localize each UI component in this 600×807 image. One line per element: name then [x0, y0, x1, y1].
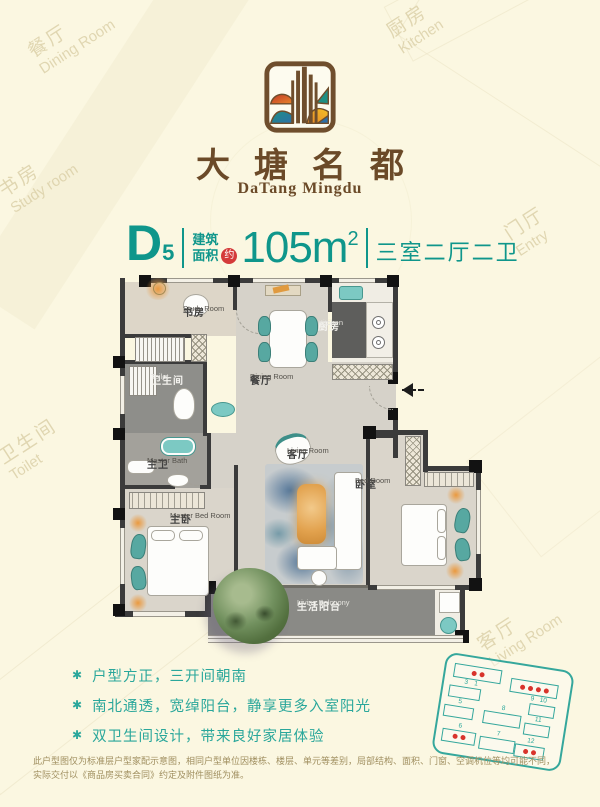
- window: [120, 528, 125, 584]
- master-wardrobe: [129, 492, 205, 509]
- siteplan-building-8: 8: [482, 710, 522, 729]
- toilet-fixture: [173, 388, 195, 420]
- dining-table: [269, 310, 307, 368]
- unit-location-dot: [543, 688, 549, 694]
- divider: [182, 228, 184, 268]
- dining-chair: [305, 316, 318, 336]
- siteplan-building-5: 5: [443, 704, 475, 721]
- window: [377, 585, 455, 590]
- coffee-table: [297, 484, 326, 544]
- bedroom-closet: [405, 436, 421, 486]
- unit-location-dot: [527, 685, 533, 691]
- unit-code: D5: [126, 218, 174, 278]
- lamp-glow: [129, 594, 147, 612]
- pillow: [151, 530, 175, 541]
- brand-logo: [261, 58, 339, 136]
- closet-cabinet: [191, 334, 207, 362]
- star-bullet-icon: ✱: [72, 698, 83, 712]
- window: [339, 278, 375, 283]
- balcony-tree: [213, 568, 289, 644]
- window: [133, 611, 185, 617]
- watermark-rect: [384, 0, 538, 62]
- flyer-page: 餐厅Dining Room 厨房Kitchen 书房Study room 门厅E…: [0, 0, 600, 807]
- unit-location-dot: [479, 671, 485, 677]
- wall-segment: [393, 278, 398, 384]
- window: [253, 278, 305, 283]
- pillow: [437, 536, 446, 560]
- siteplan-building-7: 7: [478, 736, 516, 754]
- corner-column: [387, 275, 399, 287]
- lamp-glow: [129, 514, 147, 532]
- sofa-chaise: [297, 546, 337, 570]
- star-bullet-icon: ✱: [72, 728, 83, 742]
- unit-location-dot: [535, 686, 541, 692]
- compass-rosette: [153, 282, 166, 295]
- siteplan-building-6: 6: [441, 728, 477, 746]
- unit-location-dot: [460, 735, 466, 741]
- wall-segment: [120, 485, 175, 489]
- bath-toilet: [167, 474, 189, 487]
- feature-item: ✱南北通透，宽绰阳台，静享更多入室阳光: [72, 690, 371, 720]
- bedroom-wardrobe: [424, 472, 474, 487]
- laundry-cabinet: [135, 337, 185, 362]
- kitchen-counter-strip: [366, 302, 393, 358]
- laundry-sink: [440, 617, 457, 634]
- floor-plan: 书房Study Room 餐厅Dining Room 厨房Kitchen 卫生间…: [115, 278, 503, 666]
- window: [476, 490, 481, 554]
- disclaimer-text: 此户型图仅为标准层户型家配示意图，相同户型单位因楼栋、楼层、单元等差别，局部结构…: [33, 754, 568, 783]
- window: [167, 278, 213, 283]
- kitchen-cabinets: [332, 364, 393, 380]
- corner-column: [113, 508, 125, 520]
- corner-column: [363, 426, 376, 439]
- unit-location-dot: [471, 670, 477, 676]
- layout-text: 三室二厅二卫: [376, 229, 520, 267]
- area-value: 105m2: [241, 223, 357, 273]
- siteplan-building-9: 9: [509, 678, 559, 699]
- dining-chair: [305, 342, 318, 362]
- dining-chair: [258, 342, 271, 362]
- unit-spec-row: D5 建筑 面积 约 105m2 三室二厅二卫: [126, 220, 520, 276]
- entry-arrow-tail: [402, 389, 424, 391]
- wall-segment: [366, 435, 370, 588]
- approx-badge: 约: [221, 248, 237, 264]
- wall-segment: [207, 433, 211, 489]
- bathtub: [161, 438, 195, 455]
- washing-machine: [439, 592, 460, 613]
- watermark-label-dining: 餐厅Dining Room: [24, 0, 118, 78]
- siteplan-building-11: 11: [523, 723, 551, 739]
- unit-location-dot: [452, 733, 458, 739]
- watermark-label-toilet: 卫生间Toilet: [0, 415, 71, 484]
- unit-location-dot: [519, 684, 525, 690]
- divider: [366, 228, 368, 268]
- feature-list: ✱户型方正，三开间朝南 ✱南北通透，宽绰阳台，静享更多入室阳光 ✱双卫生间设计，…: [72, 660, 371, 750]
- star-bullet-icon: ✱: [72, 668, 83, 682]
- corner-column: [113, 604, 125, 616]
- feature-item: ✱户型方正，三开间朝南: [72, 660, 371, 690]
- corner-column: [469, 578, 482, 591]
- washbasin: [211, 402, 235, 417]
- lamp-glow: [447, 486, 465, 504]
- pillow: [179, 530, 203, 541]
- corner-column: [320, 275, 332, 287]
- stove-burner: [372, 316, 385, 329]
- brand-name-en: DaTang Mingdu: [0, 180, 600, 198]
- lamp-glow: [446, 562, 464, 580]
- stove-burner: [372, 336, 385, 349]
- siteplan-building-1: 1: [453, 663, 503, 684]
- dining-chair: [258, 316, 271, 336]
- watermark-label-kitchen: 厨房Kitchen: [383, 0, 446, 58]
- kitchen-sink: [339, 286, 363, 300]
- side-table: [311, 570, 327, 586]
- wall-segment: [200, 485, 211, 489]
- corner-column: [228, 275, 240, 287]
- window: [120, 376, 125, 414]
- pillow: [437, 509, 446, 533]
- wall-segment: [203, 360, 207, 436]
- area-label: 建筑 面积: [192, 232, 218, 263]
- corner-column: [113, 356, 125, 368]
- feature-item: ✱双卫生间设计，带来良好家居体验: [72, 720, 371, 750]
- corner-column: [113, 428, 125, 440]
